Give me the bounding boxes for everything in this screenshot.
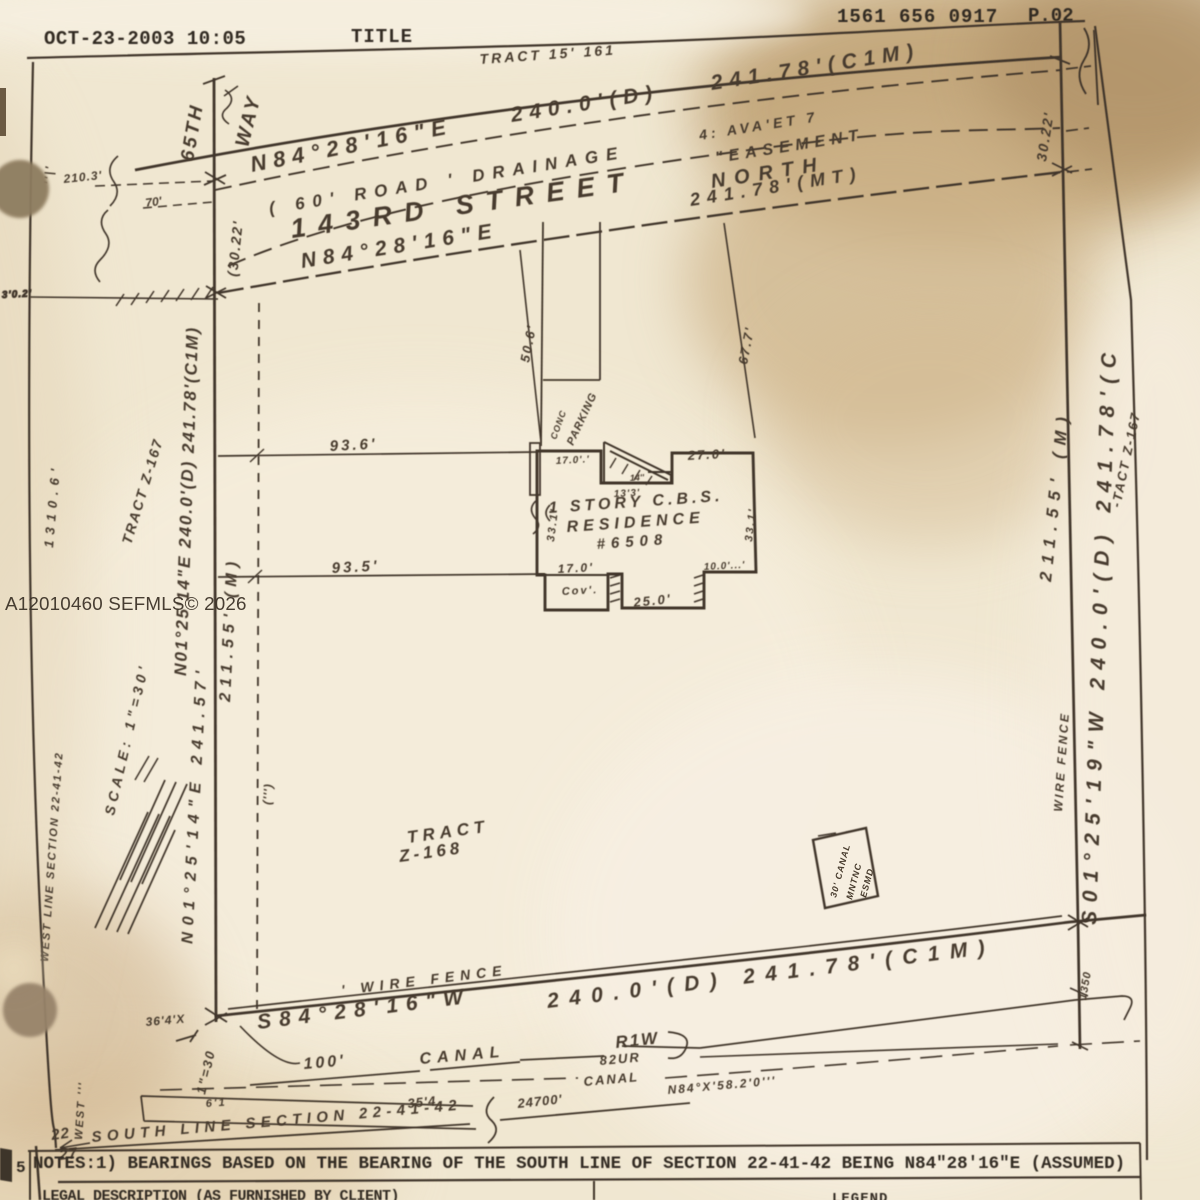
svg-text:5: 5 [16, 1159, 26, 1177]
svg-text:17.0'.': 17.0'.' [556, 454, 591, 467]
svg-text:LEGEND: LEGEND [832, 1191, 888, 1200]
svg-text:OCT-23-2003 10:05: OCT-23-2003 10:05 [44, 28, 246, 50]
svg-text:LEGAL DESCRIPTION (AS FURNISHE: LEGAL DESCRIPTION (AS FURNISHED BY CLIEN… [42, 1188, 399, 1200]
svg-text:14'': 14'' [630, 472, 646, 483]
svg-text:93.5': 93.5' [331, 558, 380, 577]
svg-text:17.0': 17.0' [557, 560, 594, 576]
svg-text:13'3': 13'3' [614, 488, 641, 500]
svg-text:1561 656 0917: 1561 656 0917 [837, 6, 998, 28]
svg-text:A12010460 SEFMLS© 2026: A12010460 SEFMLS© 2026 [5, 593, 247, 614]
svg-text:93.6': 93.6' [329, 436, 378, 455]
svg-text:10.0'...': 10.0'...' [704, 560, 746, 573]
svg-text:NOTES:1) BEARINGS BASED ON TH: NOTES:1) BEARINGS BASED ON THE BEARING O… [33, 1154, 1125, 1174]
svg-text:3'0.2': 3'0.2' [2, 288, 33, 301]
svg-text:Cov'.: Cov'. [562, 584, 599, 598]
svg-text:70': 70' [144, 194, 163, 210]
svg-text:22: 22 [49, 1125, 71, 1145]
svg-text:TITLE: TITLE [351, 26, 413, 48]
svg-text:27.0': 27.0' [686, 446, 726, 463]
svg-text:6'1: 6'1 [205, 1097, 227, 1110]
svg-text:('''): (''') [260, 783, 275, 805]
